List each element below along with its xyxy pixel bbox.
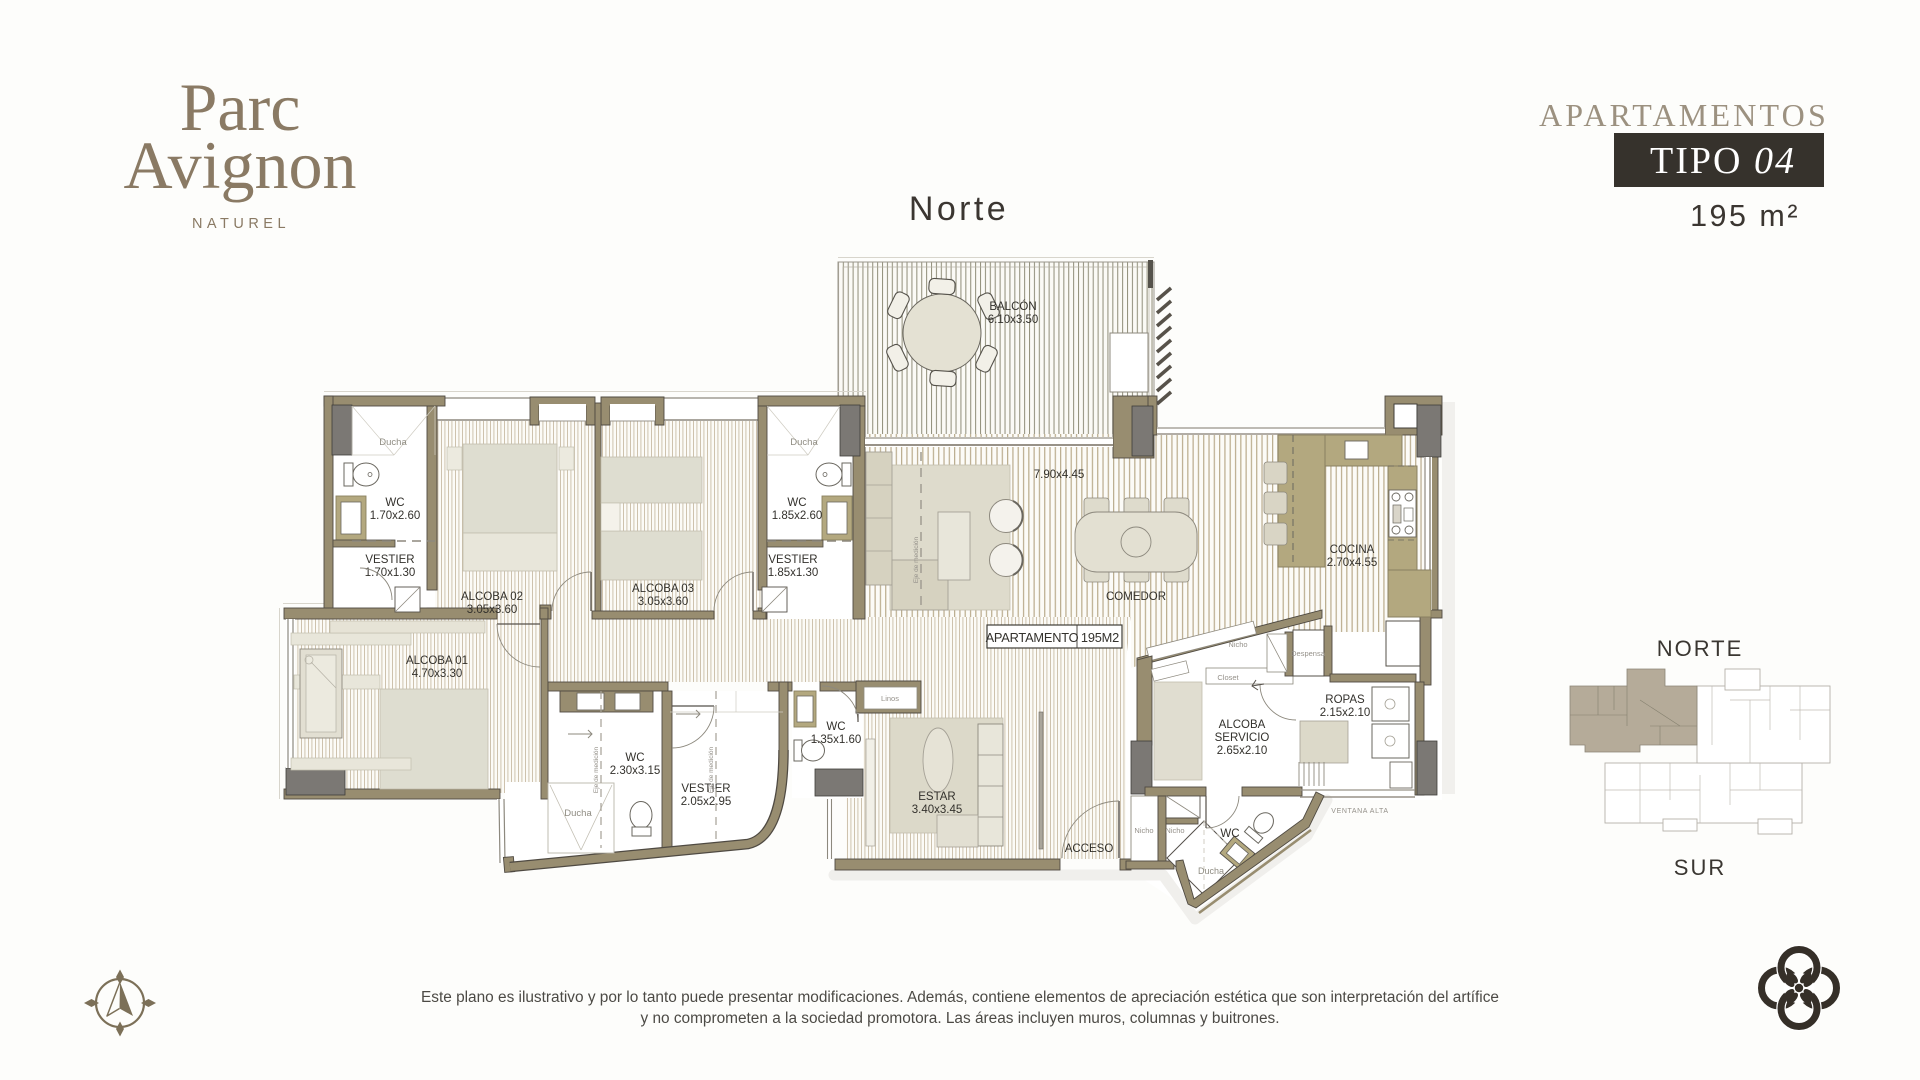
svg-text:Eje de medición: Eje de medición <box>708 746 715 793</box>
svg-text:2.30x3.15: 2.30x3.15 <box>610 765 661 777</box>
svg-text:ROPAS: ROPAS <box>1325 694 1365 706</box>
svg-text:VESTIER: VESTIER <box>768 554 817 566</box>
svg-text:TIPO 04: TIPO 04 <box>1650 140 1796 182</box>
svg-text:ACCESO: ACCESO <box>1065 843 1114 855</box>
svg-text:NATUREL: NATUREL <box>192 216 290 232</box>
svg-text:4.70x3.30: 4.70x3.30 <box>412 668 463 680</box>
svg-text:WC: WC <box>625 752 644 764</box>
svg-text:Ducha: Ducha <box>379 437 407 448</box>
svg-text:VESTIER: VESTIER <box>365 554 414 566</box>
svg-text:y no comprometen a la sociedad: y no comprometen a la sociedad promotora… <box>640 1010 1279 1027</box>
svg-text:ALCOBA: ALCOBA <box>1219 719 1266 731</box>
svg-text:Ducha: Ducha <box>1198 866 1224 876</box>
svg-text:7.90x4.45: 7.90x4.45 <box>1034 469 1085 481</box>
svg-text:1.85x1.30: 1.85x1.30 <box>768 567 819 579</box>
svg-text:1.70x2.60: 1.70x2.60 <box>370 510 421 522</box>
svg-text:3.05x3.60: 3.05x3.60 <box>638 596 689 608</box>
svg-text:APARTAMENTOS: APARTAMENTOS <box>1539 97 1829 133</box>
svg-text:Ducha: Ducha <box>564 808 592 819</box>
svg-text:2.65x2.10: 2.65x2.10 <box>1217 745 1268 757</box>
svg-text:SERVICIO: SERVICIO <box>1215 732 1270 744</box>
svg-text:1.70x1.30: 1.70x1.30 <box>365 567 416 579</box>
svg-text:Avignon: Avignon <box>124 127 357 203</box>
svg-text:Norte: Norte <box>909 190 1009 228</box>
svg-text:Linos: Linos <box>881 694 899 703</box>
svg-text:6.10x3.50: 6.10x3.50 <box>988 314 1039 326</box>
svg-text:ALCOBA 01: ALCOBA 01 <box>406 655 468 667</box>
svg-text:WC: WC <box>385 497 404 509</box>
svg-text:3.40x3.45: 3.40x3.45 <box>912 804 963 816</box>
svg-text:1.85x2.60: 1.85x2.60 <box>772 510 823 522</box>
svg-text:VENTANA ALTA: VENTANA ALTA <box>1331 808 1388 815</box>
svg-text:ALCOBA 03: ALCOBA 03 <box>632 583 694 595</box>
svg-text:Closet: Closet <box>1217 673 1239 682</box>
svg-text:Eje de medición: Eje de medición <box>913 536 920 583</box>
svg-text:APARTAMENTO: APARTAMENTO <box>986 630 1079 645</box>
svg-text:195M2: 195M2 <box>1081 630 1119 645</box>
svg-text:Eje de medición: Eje de medición <box>593 746 600 793</box>
svg-text:195 m²: 195 m² <box>1690 199 1800 233</box>
svg-text:Nicho: Nicho <box>1228 640 1247 649</box>
svg-text:Ducha: Ducha <box>790 437 818 448</box>
svg-text:BALCÓN: BALCÓN <box>989 300 1036 313</box>
svg-text:SUR: SUR <box>1674 855 1726 880</box>
svg-text:WC: WC <box>826 721 845 733</box>
svg-text:Despensa: Despensa <box>1291 649 1326 658</box>
svg-text:NORTE: NORTE <box>1657 636 1744 661</box>
svg-text:3.05x3.60: 3.05x3.60 <box>467 604 518 616</box>
svg-text:ESTAR: ESTAR <box>918 791 956 803</box>
svg-text:1.35x1.60: 1.35x1.60 <box>811 734 862 746</box>
svg-text:ALCOBA 02: ALCOBA 02 <box>461 591 523 603</box>
svg-text:COCINA: COCINA <box>1330 544 1375 556</box>
svg-text:WC: WC <box>787 497 806 509</box>
svg-text:WC: WC <box>1220 828 1239 840</box>
svg-text:VESTIER: VESTIER <box>681 783 730 795</box>
svg-text:2.15x2.10: 2.15x2.10 <box>1320 707 1371 719</box>
svg-text:2.05x2.95: 2.05x2.95 <box>681 796 732 808</box>
svg-text:2.70x4.55: 2.70x4.55 <box>1327 557 1378 569</box>
svg-text:Nicho: Nicho <box>1134 826 1153 835</box>
svg-text:Nicho: Nicho <box>1165 826 1184 835</box>
svg-text:COMEDOR: COMEDOR <box>1106 591 1166 603</box>
svg-text:Este plano es ilustrativo y po: Este plano es ilustrativo y por lo tanto… <box>421 989 1499 1006</box>
